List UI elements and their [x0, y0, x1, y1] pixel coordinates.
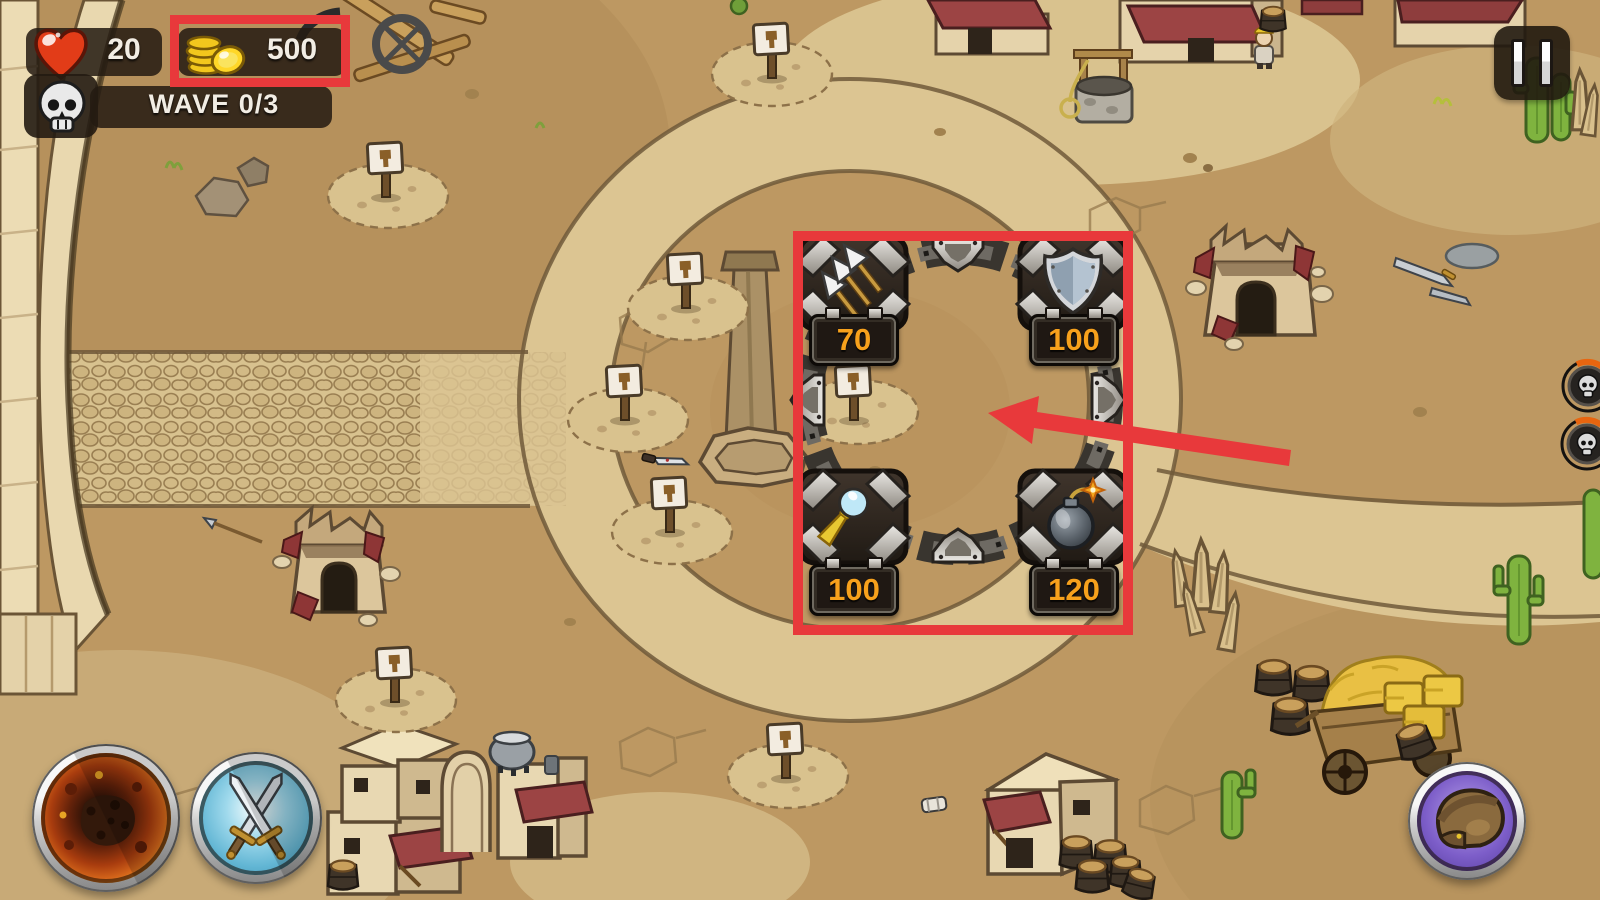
annotation-rect-gold — [170, 15, 350, 87]
cooldown-sheen — [190, 752, 322, 884]
reinforcements-button[interactable] — [190, 752, 322, 884]
cooldown-sheen — [32, 744, 180, 892]
skull-icon — [32, 78, 92, 138]
rain-of-fire-button[interactable] — [32, 744, 180, 892]
game-screen: 70 100 100 — [0, 0, 1600, 900]
pause-icon — [1511, 39, 1525, 87]
wave-label: WAVE 0/3 — [96, 89, 332, 120]
leather-helmet-icon — [1417, 771, 1517, 871]
lives-value: 20 — [92, 33, 156, 67]
annotation-rect-build-menu — [793, 231, 1133, 635]
pause-icon — [1539, 39, 1553, 87]
pause-button[interactable] — [1494, 26, 1570, 100]
incoming-wave-indicator[interactable] — [1560, 358, 1600, 414]
incoming-wave-indicator[interactable] — [1559, 416, 1600, 472]
hero-item-button[interactable] — [1408, 762, 1526, 880]
